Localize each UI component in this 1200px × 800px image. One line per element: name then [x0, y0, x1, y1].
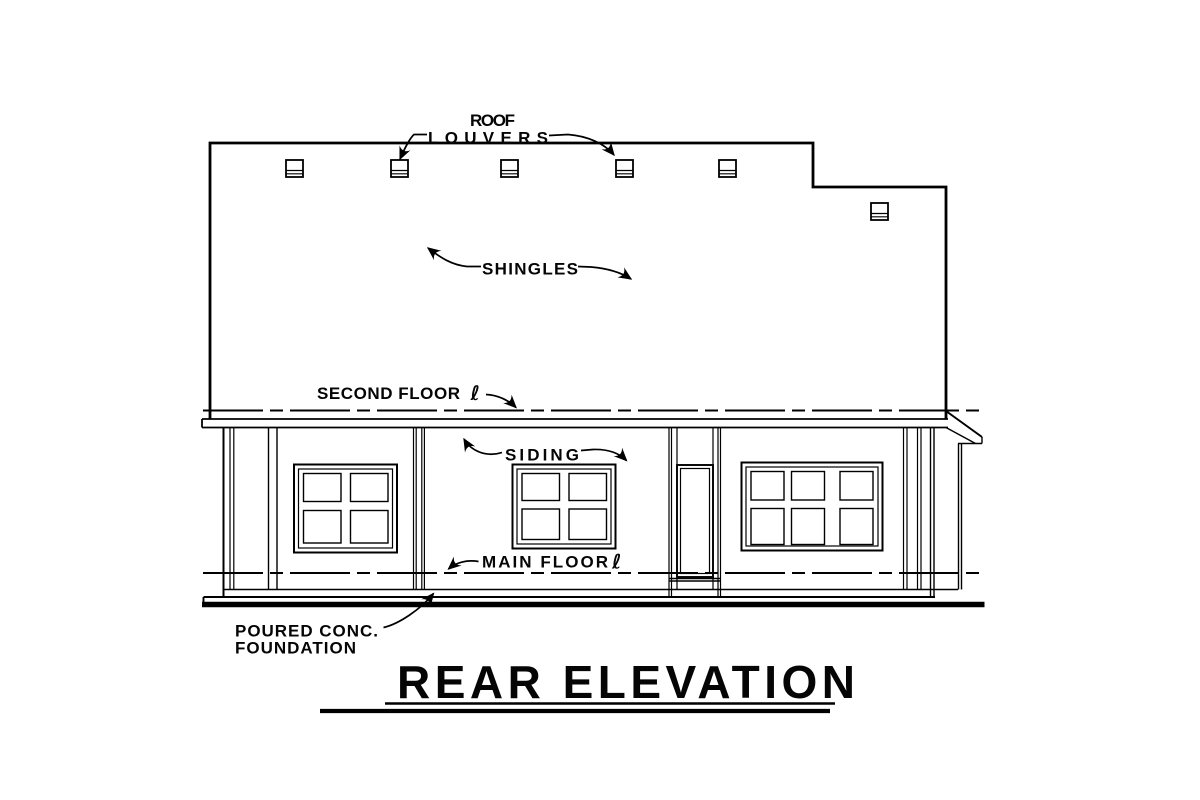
- foundation: [202, 590, 985, 605]
- window: [294, 465, 397, 553]
- rear-door: [669, 465, 721, 581]
- window: [742, 463, 883, 551]
- eave-return: [946, 411, 982, 590]
- title-block: REAR ELEVATION: [320, 656, 855, 711]
- leader-second-floor: [486, 395, 516, 408]
- leader-shingles-left: [428, 248, 481, 267]
- window: [513, 465, 616, 549]
- label-roof-louvers-line1: ROOF: [470, 111, 515, 130]
- label-second-floor: SECOND FLOOR: [317, 384, 460, 403]
- leader-louvers-right: [549, 135, 614, 156]
- leader-main-floor: [449, 561, 479, 569]
- label-siding: SIDING: [505, 446, 579, 465]
- label-shingles: SHINGLES: [482, 260, 578, 279]
- roof-louver: [871, 203, 888, 220]
- fascia-band: [202, 419, 948, 428]
- roof: [210, 143, 946, 419]
- label-roof-louvers-line2: LOUVERS: [428, 129, 548, 148]
- leader-shingles-right: [578, 267, 631, 280]
- roof-outline: [210, 143, 946, 419]
- leader-siding-left: [464, 439, 502, 454]
- leader-foundation: [384, 594, 434, 628]
- annotation-labels: ROOF LOUVERS SHINGLES SECOND FLOOR ℓ SID…: [235, 111, 621, 658]
- roof-louver: [286, 160, 303, 177]
- main-floor-level-symbol: ℓ: [611, 550, 621, 574]
- roof-louver: [616, 160, 633, 177]
- label-main-floor: MAIN FLOOR: [482, 553, 608, 572]
- roof-louver: [501, 160, 518, 177]
- drawing-title: REAR ELEVATION: [397, 656, 855, 708]
- roof-louver: [719, 160, 736, 177]
- wall-right-corner-trim: [904, 428, 922, 590]
- rear-elevation-drawing: ROOF LOUVERS SHINGLES SECOND FLOOR ℓ SID…: [0, 0, 1200, 800]
- roof-louver: [391, 160, 408, 177]
- leader-siding-right: [581, 449, 627, 460]
- leader-louvers-left: [400, 135, 427, 160]
- label-foundation-line2: FOUNDATION: [235, 639, 356, 658]
- drawing-sheet: ROOF LOUVERS SHINGLES SECOND FLOOR ℓ SID…: [0, 0, 1200, 800]
- second-floor-level-symbol: ℓ: [470, 381, 480, 405]
